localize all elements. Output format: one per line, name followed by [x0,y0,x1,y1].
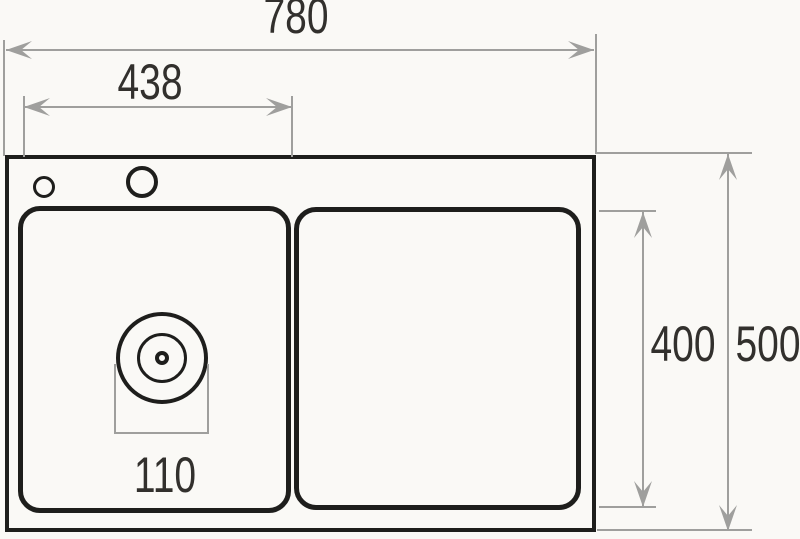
extension-line-400-bottom [599,506,656,508]
right-drainboard-rect [294,207,581,510]
dim-label-overall-height: 500 [713,319,800,369]
sink-technical-drawing: 780 438 400 500 110 [0,0,800,539]
extension-line-438-left [23,96,25,157]
dim-bracket-110 [114,364,209,434]
faucet-hole-large-circle [126,166,158,198]
faucet-hole-small-circle [33,176,55,198]
extension-line-780-right [595,34,597,154]
drain-center-circle [155,351,169,365]
dim-label-drain-diameter: 110 [110,450,219,500]
dim-label-overall-width: 780 [241,0,350,41]
dim-line-780 [6,49,594,51]
extension-line-438-right [291,96,293,157]
dim-label-bowl-width: 438 [95,57,204,107]
extension-line-400-top [599,210,656,212]
extension-line-500-bottom [597,529,752,531]
extension-line-500-top [597,152,752,154]
extension-line-780-left [3,40,5,156]
